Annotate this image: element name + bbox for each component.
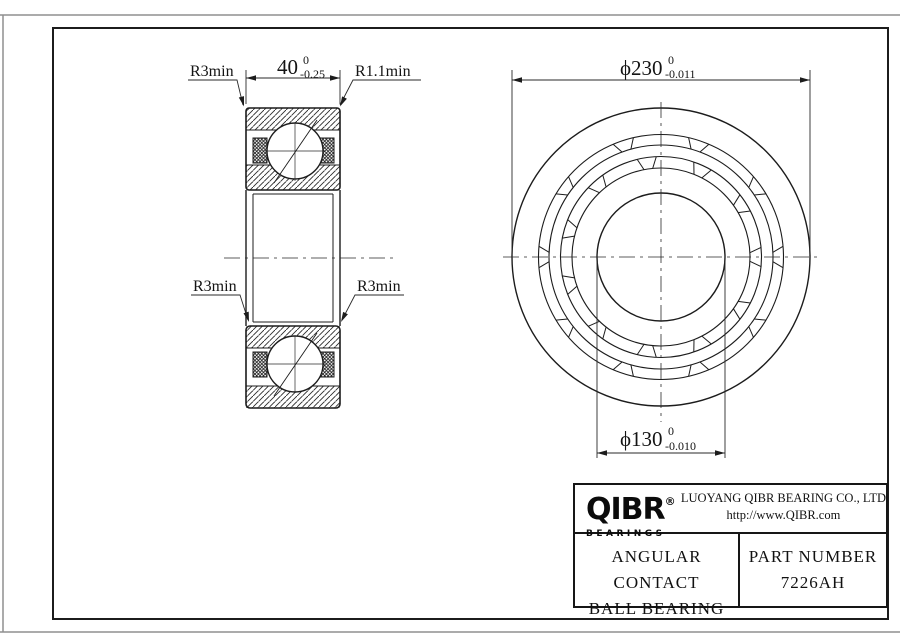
dim-od-value: ϕ230 bbox=[620, 56, 663, 80]
company-logo: QIBR® BEARINGS bbox=[575, 485, 681, 532]
section-lower bbox=[246, 322, 340, 408]
part-number-label: PART NUMBER bbox=[740, 544, 886, 570]
dim-width-tol-lower: -0.25 bbox=[300, 67, 325, 81]
part-number-cell: PART NUMBER 7226AH bbox=[740, 534, 886, 606]
logo-text: QIBR bbox=[586, 492, 665, 527]
part-number-value: 7226AH bbox=[740, 570, 886, 596]
dim-width-tol-upper: 0 bbox=[303, 53, 309, 67]
dim-od-tol-lower: -0.011 bbox=[665, 67, 696, 81]
radius-label-top-right: R1.1min bbox=[355, 63, 411, 80]
title-block-header-row: QIBR® BEARINGS LUOYANG QIBR BEARING CO.,… bbox=[575, 485, 886, 534]
dim-bore-value: ϕ130 bbox=[620, 427, 663, 451]
product-name-cell: ANGULAR CONTACT BALL BEARING bbox=[575, 534, 740, 606]
title-block: QIBR® BEARINGS LUOYANG QIBR BEARING CO.,… bbox=[573, 483, 888, 608]
dim-od-tol-upper: 0 bbox=[668, 53, 674, 67]
radius-label-mid-left: R3min bbox=[193, 278, 237, 295]
dim-bore-tol-upper: 0 bbox=[668, 424, 674, 438]
radius-label-top-left: R3min bbox=[190, 63, 234, 80]
company-info: LUOYANG QIBR BEARING CO., LTD http://www… bbox=[681, 485, 886, 532]
front-view bbox=[503, 102, 820, 422]
registered-trademark-icon: ® bbox=[665, 495, 676, 508]
dim-width-value: 40 bbox=[277, 55, 298, 79]
product-name-line2: BALL BEARING bbox=[575, 596, 738, 622]
drawing-sheet: 40 0 -0.25 ϕ230 0 -0.011 ϕ130 0 -0.010 R… bbox=[0, 0, 900, 636]
radius-label-mid-right: R3min bbox=[357, 278, 401, 295]
cage-section-left bbox=[253, 138, 267, 163]
title-block-detail-row: ANGULAR CONTACT BALL BEARING PART NUMBER… bbox=[575, 534, 886, 606]
company-name: LUOYANG QIBR BEARING CO., LTD bbox=[681, 490, 886, 507]
section-upper bbox=[246, 108, 340, 194]
dim-bore-tol-lower: -0.010 bbox=[665, 439, 696, 453]
product-name-line1: ANGULAR CONTACT bbox=[575, 544, 738, 596]
section-view bbox=[224, 108, 396, 408]
cage-section-left bbox=[253, 352, 267, 377]
company-website: http://www.QIBR.com bbox=[681, 507, 886, 524]
